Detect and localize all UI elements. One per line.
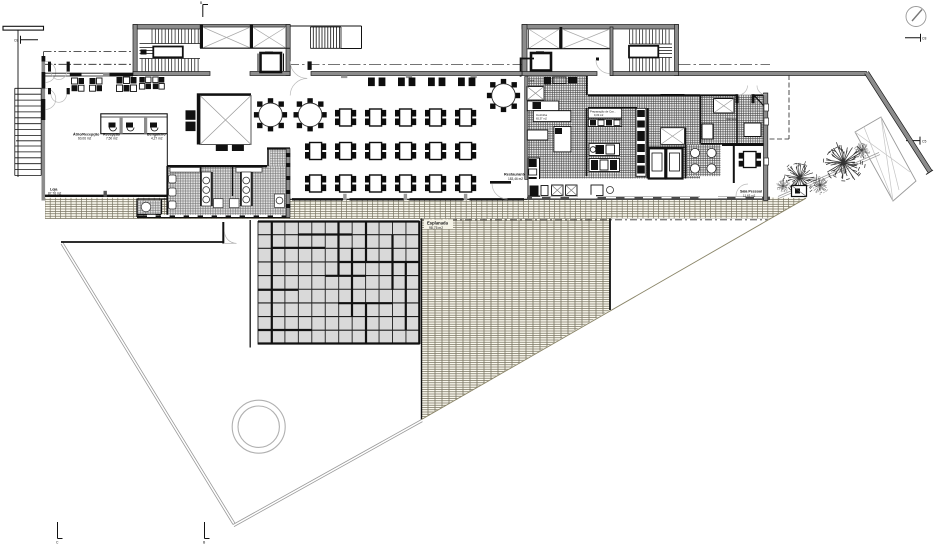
svg-text:Copa: Copa [528, 79, 535, 83]
svg-text:C8: C8 [922, 37, 926, 41]
svg-text:Esplanada: Esplanada [427, 221, 449, 226]
svg-text:Cozinha: Cozinha [536, 113, 547, 117]
svg-text:C5: C5 [922, 139, 926, 143]
svg-text:98,75 m2: 98,75 m2 [429, 226, 443, 230]
svg-text:7,50 m2: 7,50 m2 [106, 137, 118, 141]
svg-text:C8: C8 [14, 39, 18, 43]
svg-text:Câmaras: Câmaras [726, 117, 738, 121]
svg-text:9,33 m2: 9,33 m2 [594, 113, 604, 117]
svg-text:65,37 m2: 65,37 m2 [536, 117, 547, 121]
svg-text:Preparação de Car...: Preparação de Car... [590, 110, 616, 114]
svg-text:60,06 m2: 60,06 m2 [78, 137, 92, 141]
svg-text:183,46 m2: 183,46 m2 [508, 177, 523, 181]
svg-text:4,27 m2: 4,27 m2 [151, 137, 163, 141]
